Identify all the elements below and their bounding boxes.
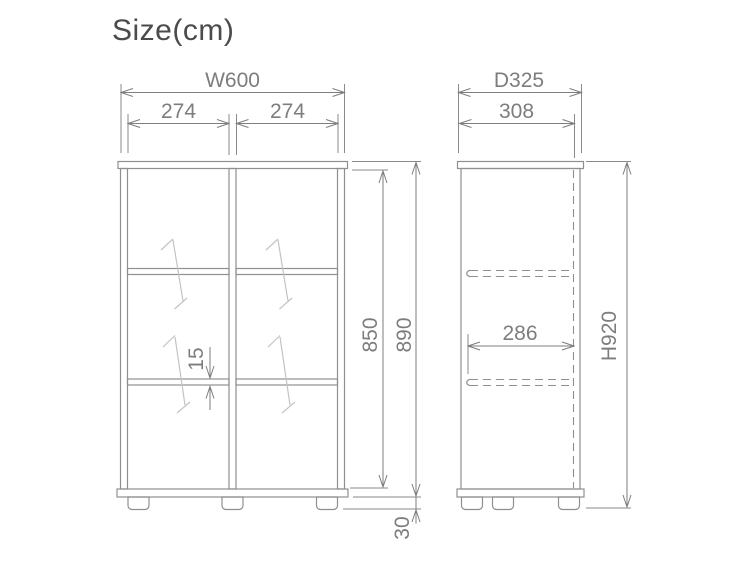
front-view: W600 274 274 15 bbox=[117, 69, 421, 540]
dim-label-top-depth: 308 bbox=[499, 100, 534, 123]
dim-label-overall-width: W600 bbox=[205, 69, 260, 92]
front-shelf-lower-left bbox=[128, 379, 230, 385]
glass-mark-lower-right bbox=[268, 336, 295, 414]
dim-interior-height: 850 bbox=[350, 170, 388, 488]
dim-label-body-height: 890 bbox=[393, 317, 416, 352]
front-base-panel bbox=[117, 489, 348, 497]
front-left-wall bbox=[121, 169, 128, 490]
page-title: Size(cm) bbox=[112, 14, 234, 47]
side-base-panel bbox=[457, 489, 584, 497]
dim-label-left-opening: 274 bbox=[161, 100, 196, 123]
dim-label-right-opening: 274 bbox=[270, 100, 305, 123]
front-foot-right bbox=[317, 497, 338, 510]
front-top-panel bbox=[118, 162, 348, 169]
hidden-shelf-upper bbox=[467, 271, 574, 277]
front-foot-center bbox=[222, 497, 243, 510]
side-top-panel bbox=[458, 162, 584, 169]
side-foot-middle bbox=[493, 497, 514, 510]
dim-leg-height: 30 bbox=[343, 497, 421, 540]
dim-overall-width: W600 bbox=[121, 69, 345, 153]
dim-opening-widths: 274 274 bbox=[128, 100, 338, 155]
dim-label-overall-height: H920 bbox=[598, 311, 621, 361]
side-foot-back bbox=[559, 497, 580, 510]
front-center-divider bbox=[229, 169, 236, 490]
side-foot-front bbox=[462, 497, 483, 510]
dim-top-depth: 308 bbox=[460, 100, 575, 158]
dim-label-shelf-thickness: 15 bbox=[185, 347, 208, 370]
front-right-wall bbox=[338, 169, 345, 490]
size-diagram: Size(cm) bbox=[0, 0, 750, 562]
front-shelf-upper-right bbox=[236, 269, 338, 275]
dim-label-interior-height: 850 bbox=[359, 317, 382, 352]
dim-label-shelf-depth: 286 bbox=[502, 322, 537, 345]
hidden-shelf-lower bbox=[467, 380, 574, 386]
dim-label-overall-depth: D325 bbox=[494, 69, 544, 92]
front-cabinet-outline bbox=[117, 162, 348, 510]
dim-shelf-depth: 286 bbox=[468, 322, 574, 374]
front-foot-left bbox=[128, 497, 149, 510]
dim-overall-height: H920 bbox=[586, 162, 631, 509]
dim-label-leg-height: 30 bbox=[391, 516, 414, 539]
glass-pane-marks bbox=[161, 239, 295, 413]
dimension-drawing: Size(cm) bbox=[0, 0, 750, 562]
glass-mark-lower-left bbox=[163, 336, 190, 414]
side-view: D325 308 286 H920 bbox=[457, 69, 631, 510]
